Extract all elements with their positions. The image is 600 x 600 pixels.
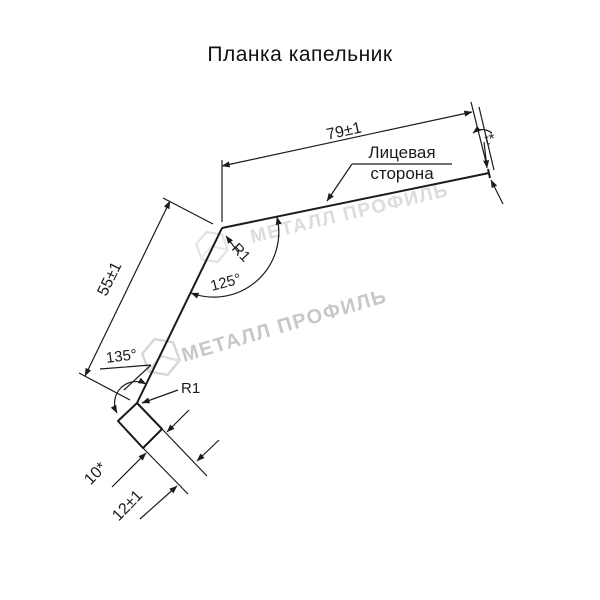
dimension-thickness bbox=[473, 107, 503, 204]
profile-left-leg bbox=[137, 228, 222, 403]
dim-hem-arrow-left bbox=[140, 486, 177, 519]
extension-line bbox=[143, 448, 188, 494]
angle-top-label: 125° bbox=[209, 270, 243, 294]
thickness-label: t* bbox=[483, 130, 496, 149]
thickness-arrow-bottom bbox=[491, 180, 503, 204]
dim-hem-arrow-right bbox=[197, 440, 219, 461]
face-label-line2: сторона bbox=[370, 164, 434, 183]
profile-end-cap bbox=[488, 169, 490, 178]
face-label-line1: Лицевая bbox=[368, 143, 435, 162]
leader-line bbox=[327, 164, 352, 201]
dim-width-label: 79±1 bbox=[325, 120, 363, 144]
profile-bottom-hem bbox=[118, 403, 162, 448]
extension-line bbox=[163, 198, 213, 224]
dim-height-label: 55±1 bbox=[95, 259, 126, 298]
brand-hexagon-icon bbox=[142, 339, 180, 375]
dim-fold-arrow-left bbox=[112, 453, 146, 487]
extension-line bbox=[162, 429, 207, 476]
technical-drawing: МЕТАЛЛ ПРОФИЛЬ МЕТАЛЛ ПРОФИЛЬ 79±1 55±1 … bbox=[0, 0, 600, 600]
dim-hem-fold-label: 10* bbox=[81, 459, 110, 488]
watermark-layer: МЕТАЛЛ ПРОФИЛЬ МЕТАЛЛ ПРОФИЛЬ bbox=[142, 180, 451, 375]
dim-fold-arrow-right bbox=[167, 410, 189, 432]
radius-bottom-label: R1 bbox=[181, 380, 200, 397]
drawing-page: { "title": "Планка капельник", "drawing"… bbox=[0, 0, 600, 600]
leader-line bbox=[142, 390, 178, 403]
leader-line bbox=[124, 365, 151, 390]
radius-bottom-callout bbox=[142, 390, 178, 403]
angle-bottom-label: 135° bbox=[105, 346, 138, 367]
